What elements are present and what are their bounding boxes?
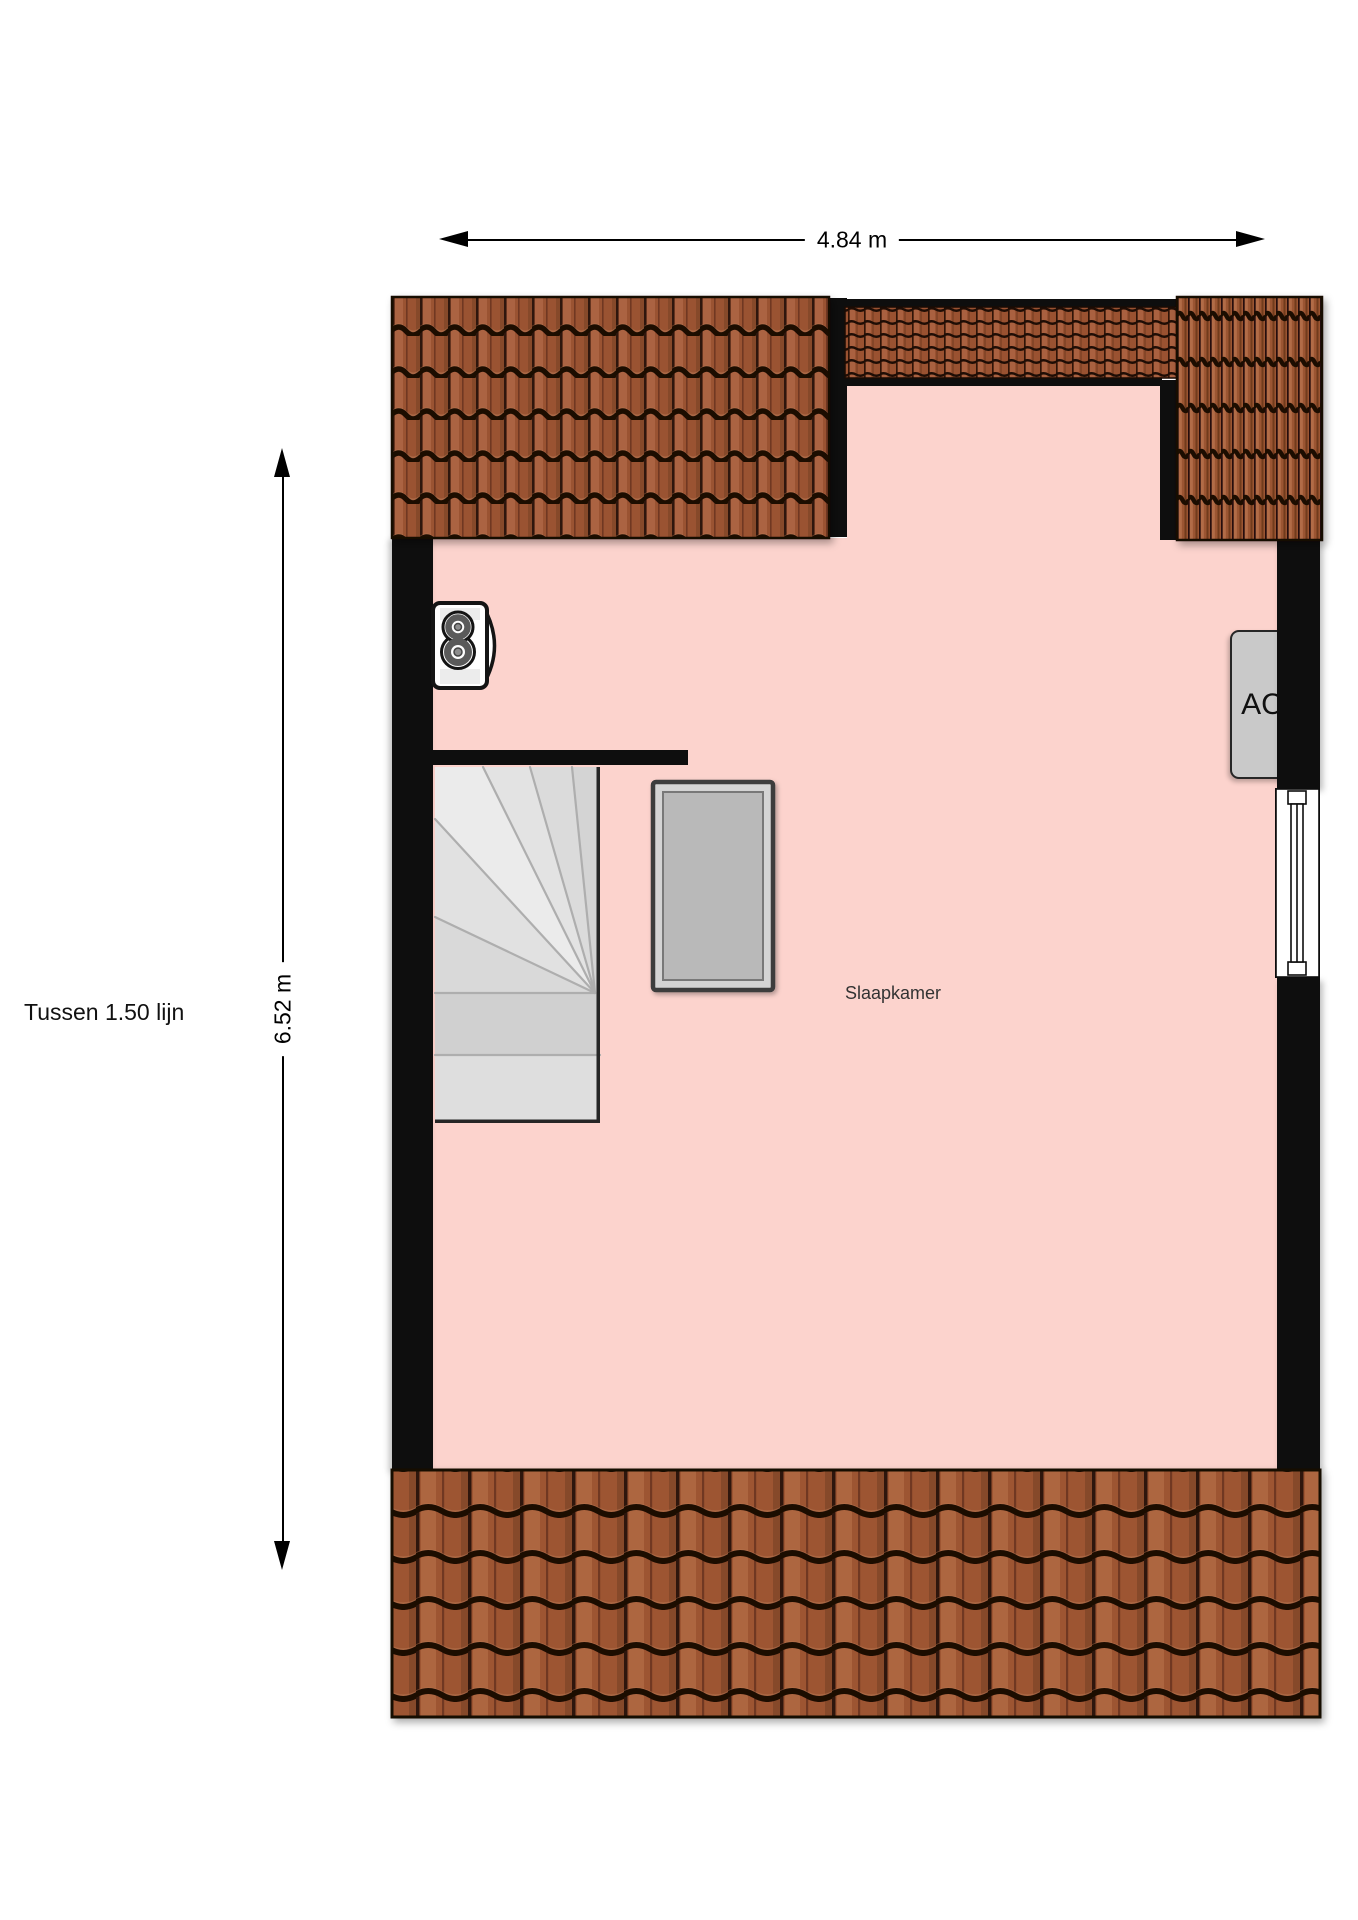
floor-plan: AC	[0, 0, 1358, 1920]
room-slaapkamer-floor	[433, 538, 1277, 1470]
wall-above-stairs	[392, 750, 688, 765]
dimension-width-label: 4.84 m	[805, 227, 899, 254]
arrow-right-icon	[1236, 231, 1265, 247]
zone-note-label: Tussen 1.50 lijn	[24, 999, 184, 1026]
dormer-bottom-wall-bar	[847, 378, 1162, 386]
room-name-label: Slaapkamer	[845, 983, 941, 1004]
arrow-down-icon	[274, 1541, 290, 1570]
wall-dormer-right-stub	[1160, 380, 1177, 540]
roof-bottom	[392, 1470, 1320, 1717]
dimension-vertical: 6.52 m	[271, 448, 295, 1570]
roof-top-right	[1177, 297, 1322, 540]
wall-right-lower	[1277, 978, 1320, 1470]
wall-right-upper	[1277, 540, 1320, 788]
window-right-wall	[1276, 789, 1319, 977]
dimension-horizontal: 4.84 m	[439, 228, 1265, 252]
roof-top-left	[392, 297, 829, 538]
dimension-height-label: 6.52 m	[270, 962, 297, 1056]
wall-dormer-left-stub	[829, 298, 847, 537]
wall-left	[392, 537, 433, 1470]
dormer-top-wall-bar	[845, 299, 1177, 308]
roof-dormer-strip	[845, 307, 1177, 378]
room-dormer-recess	[847, 386, 1160, 540]
